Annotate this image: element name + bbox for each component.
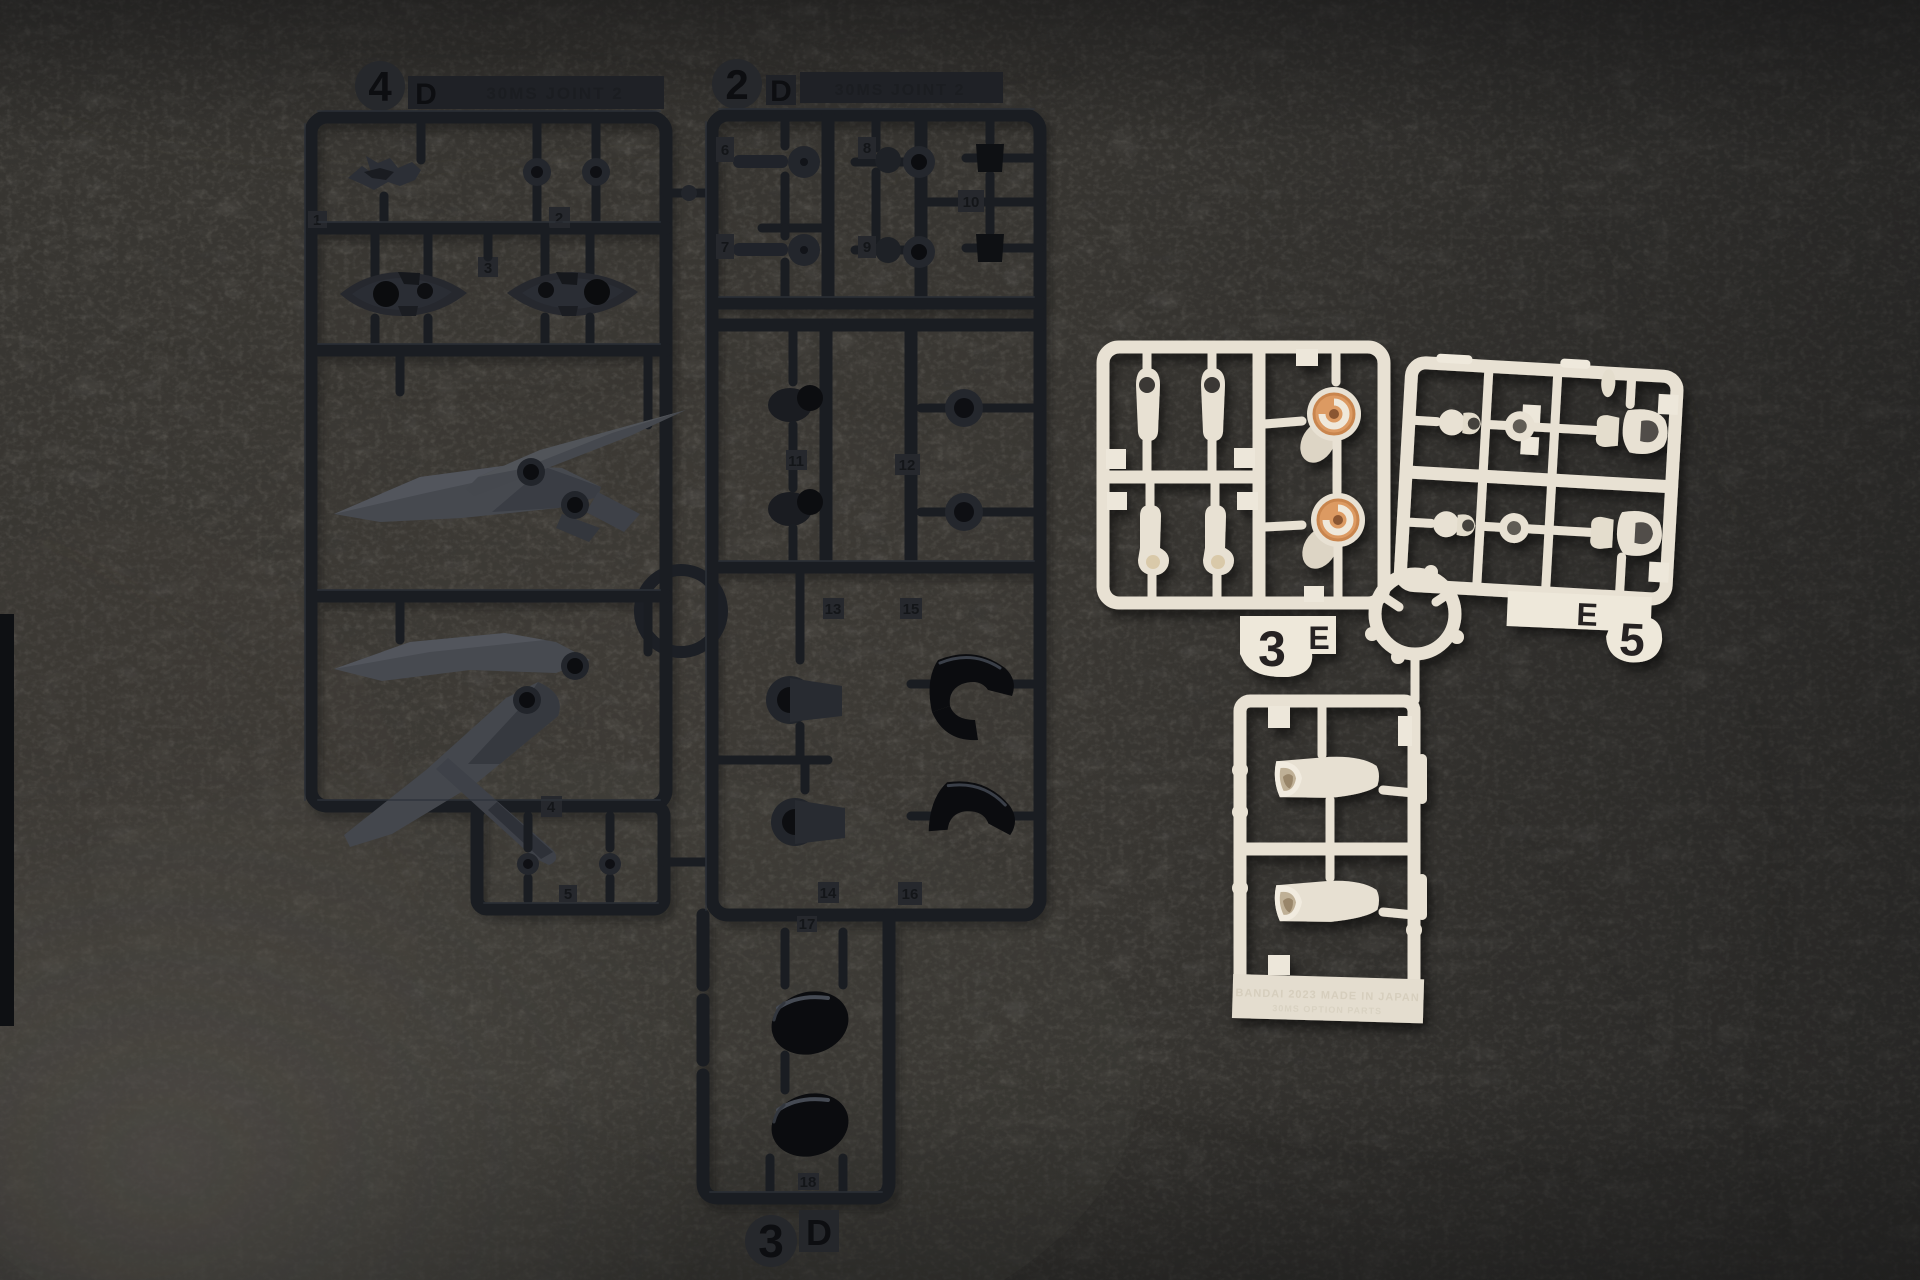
svg-text:E: E	[1308, 620, 1329, 656]
svg-text:2: 2	[555, 210, 563, 227]
svg-text:15: 15	[903, 601, 920, 618]
svg-text:18: 18	[800, 1174, 817, 1191]
svg-text:D: D	[415, 78, 437, 111]
svg-text:3: 3	[758, 1215, 784, 1267]
svg-text:5: 5	[1618, 613, 1646, 666]
svg-text:8: 8	[863, 140, 871, 157]
svg-text:10: 10	[963, 194, 980, 211]
svg-text:3: 3	[1258, 621, 1286, 677]
svg-text:13: 13	[825, 601, 842, 618]
svg-text:12: 12	[899, 457, 916, 474]
svg-text:1: 1	[313, 212, 321, 229]
svg-text:7: 7	[721, 239, 729, 256]
svg-text:30MS JOINT 2: 30MS JOINT 2	[835, 82, 966, 99]
svg-text:4: 4	[368, 63, 392, 110]
svg-text:17: 17	[799, 916, 816, 933]
svg-text:3: 3	[484, 260, 492, 277]
svg-text:14: 14	[820, 885, 837, 902]
svg-text:E: E	[1576, 596, 1599, 633]
svg-text:2: 2	[725, 61, 748, 108]
svg-text:9: 9	[863, 239, 871, 256]
svg-text:5: 5	[564, 886, 572, 903]
svg-text:30MS JOINT 2: 30MS JOINT 2	[486, 84, 623, 103]
svg-text:4: 4	[547, 799, 556, 816]
svg-text:D: D	[806, 1212, 832, 1253]
svg-text:11: 11	[788, 453, 804, 470]
svg-text:16: 16	[902, 886, 919, 903]
svg-text:6: 6	[721, 142, 729, 159]
svg-text:D: D	[770, 75, 792, 108]
